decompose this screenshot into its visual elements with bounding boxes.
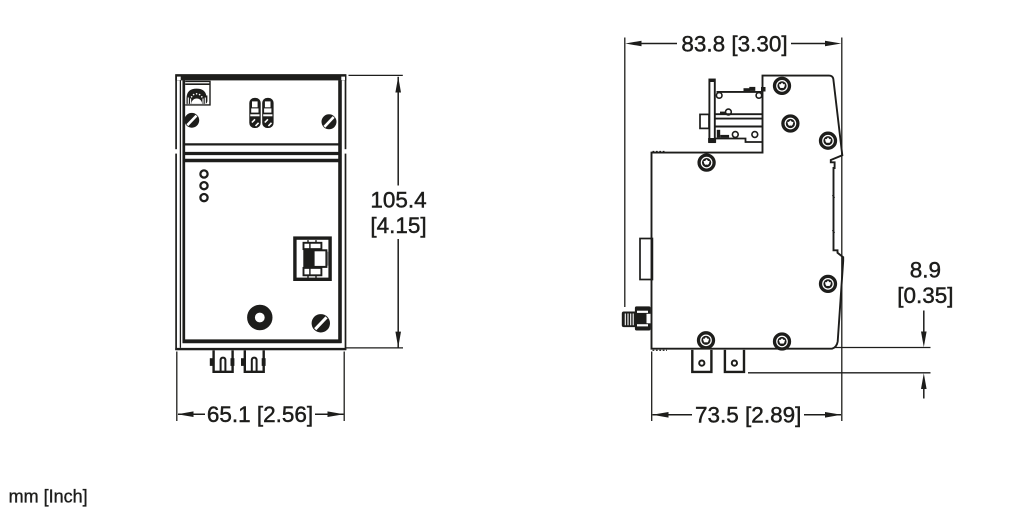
svg-text:105.4: 105.4 — [370, 188, 426, 213]
svg-text:mm [Inch]: mm [Inch] — [9, 487, 88, 507]
svg-text:65.1 [2.56]: 65.1 [2.56] — [207, 402, 313, 427]
svg-text:[4.15]: [4.15] — [370, 213, 426, 238]
svg-text:73.5 [2.89]: 73.5 [2.89] — [695, 403, 801, 428]
svg-text:83.8 [3.30]: 83.8 [3.30] — [681, 31, 787, 56]
svg-text:8.9: 8.9 — [910, 257, 941, 282]
svg-text:[0.35]: [0.35] — [897, 283, 953, 308]
